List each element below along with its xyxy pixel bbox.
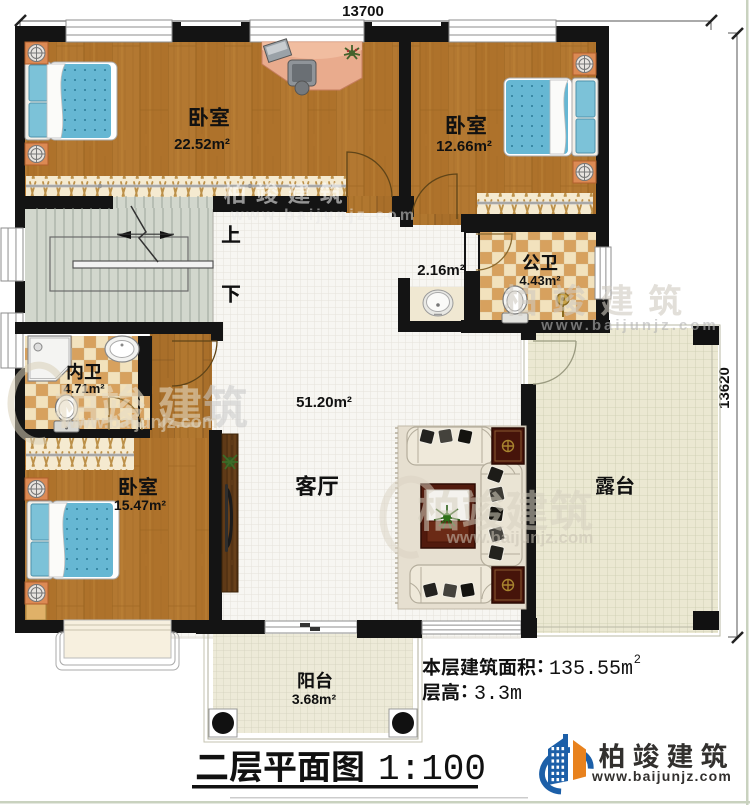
svg-text:www.baijunjz.com: www.baijunjz.com — [230, 207, 417, 224]
svg-text:www.baijunjz.com: www.baijunjz.com — [61, 412, 217, 432]
svg-text:www.baijunjz.com: www.baijunjz.com — [446, 528, 594, 547]
svg-text:3.68m²: 3.68m² — [292, 691, 337, 707]
svg-text:13700: 13700 — [342, 3, 384, 20]
svg-text:13620: 13620 — [716, 367, 733, 409]
svg-text:3.3m: 3.3m — [474, 683, 522, 706]
svg-text:2.16m²: 2.16m² — [417, 262, 465, 279]
svg-text:1:100: 1:100 — [378, 749, 486, 790]
svg-text:2: 2 — [634, 652, 641, 666]
svg-text:135.55m: 135.55m — [549, 658, 633, 681]
svg-text:www.baijunjz.com: www.baijunjz.com — [591, 768, 732, 784]
svg-text:15.47m²: 15.47m² — [114, 497, 166, 513]
svg-text:22.52m²: 22.52m² — [174, 136, 230, 153]
svg-text:51.20m²: 51.20m² — [296, 394, 352, 411]
svg-text:www.baijunjz.com: www.baijunjz.com — [540, 317, 718, 334]
svg-text:12.66m²: 12.66m² — [436, 138, 492, 155]
